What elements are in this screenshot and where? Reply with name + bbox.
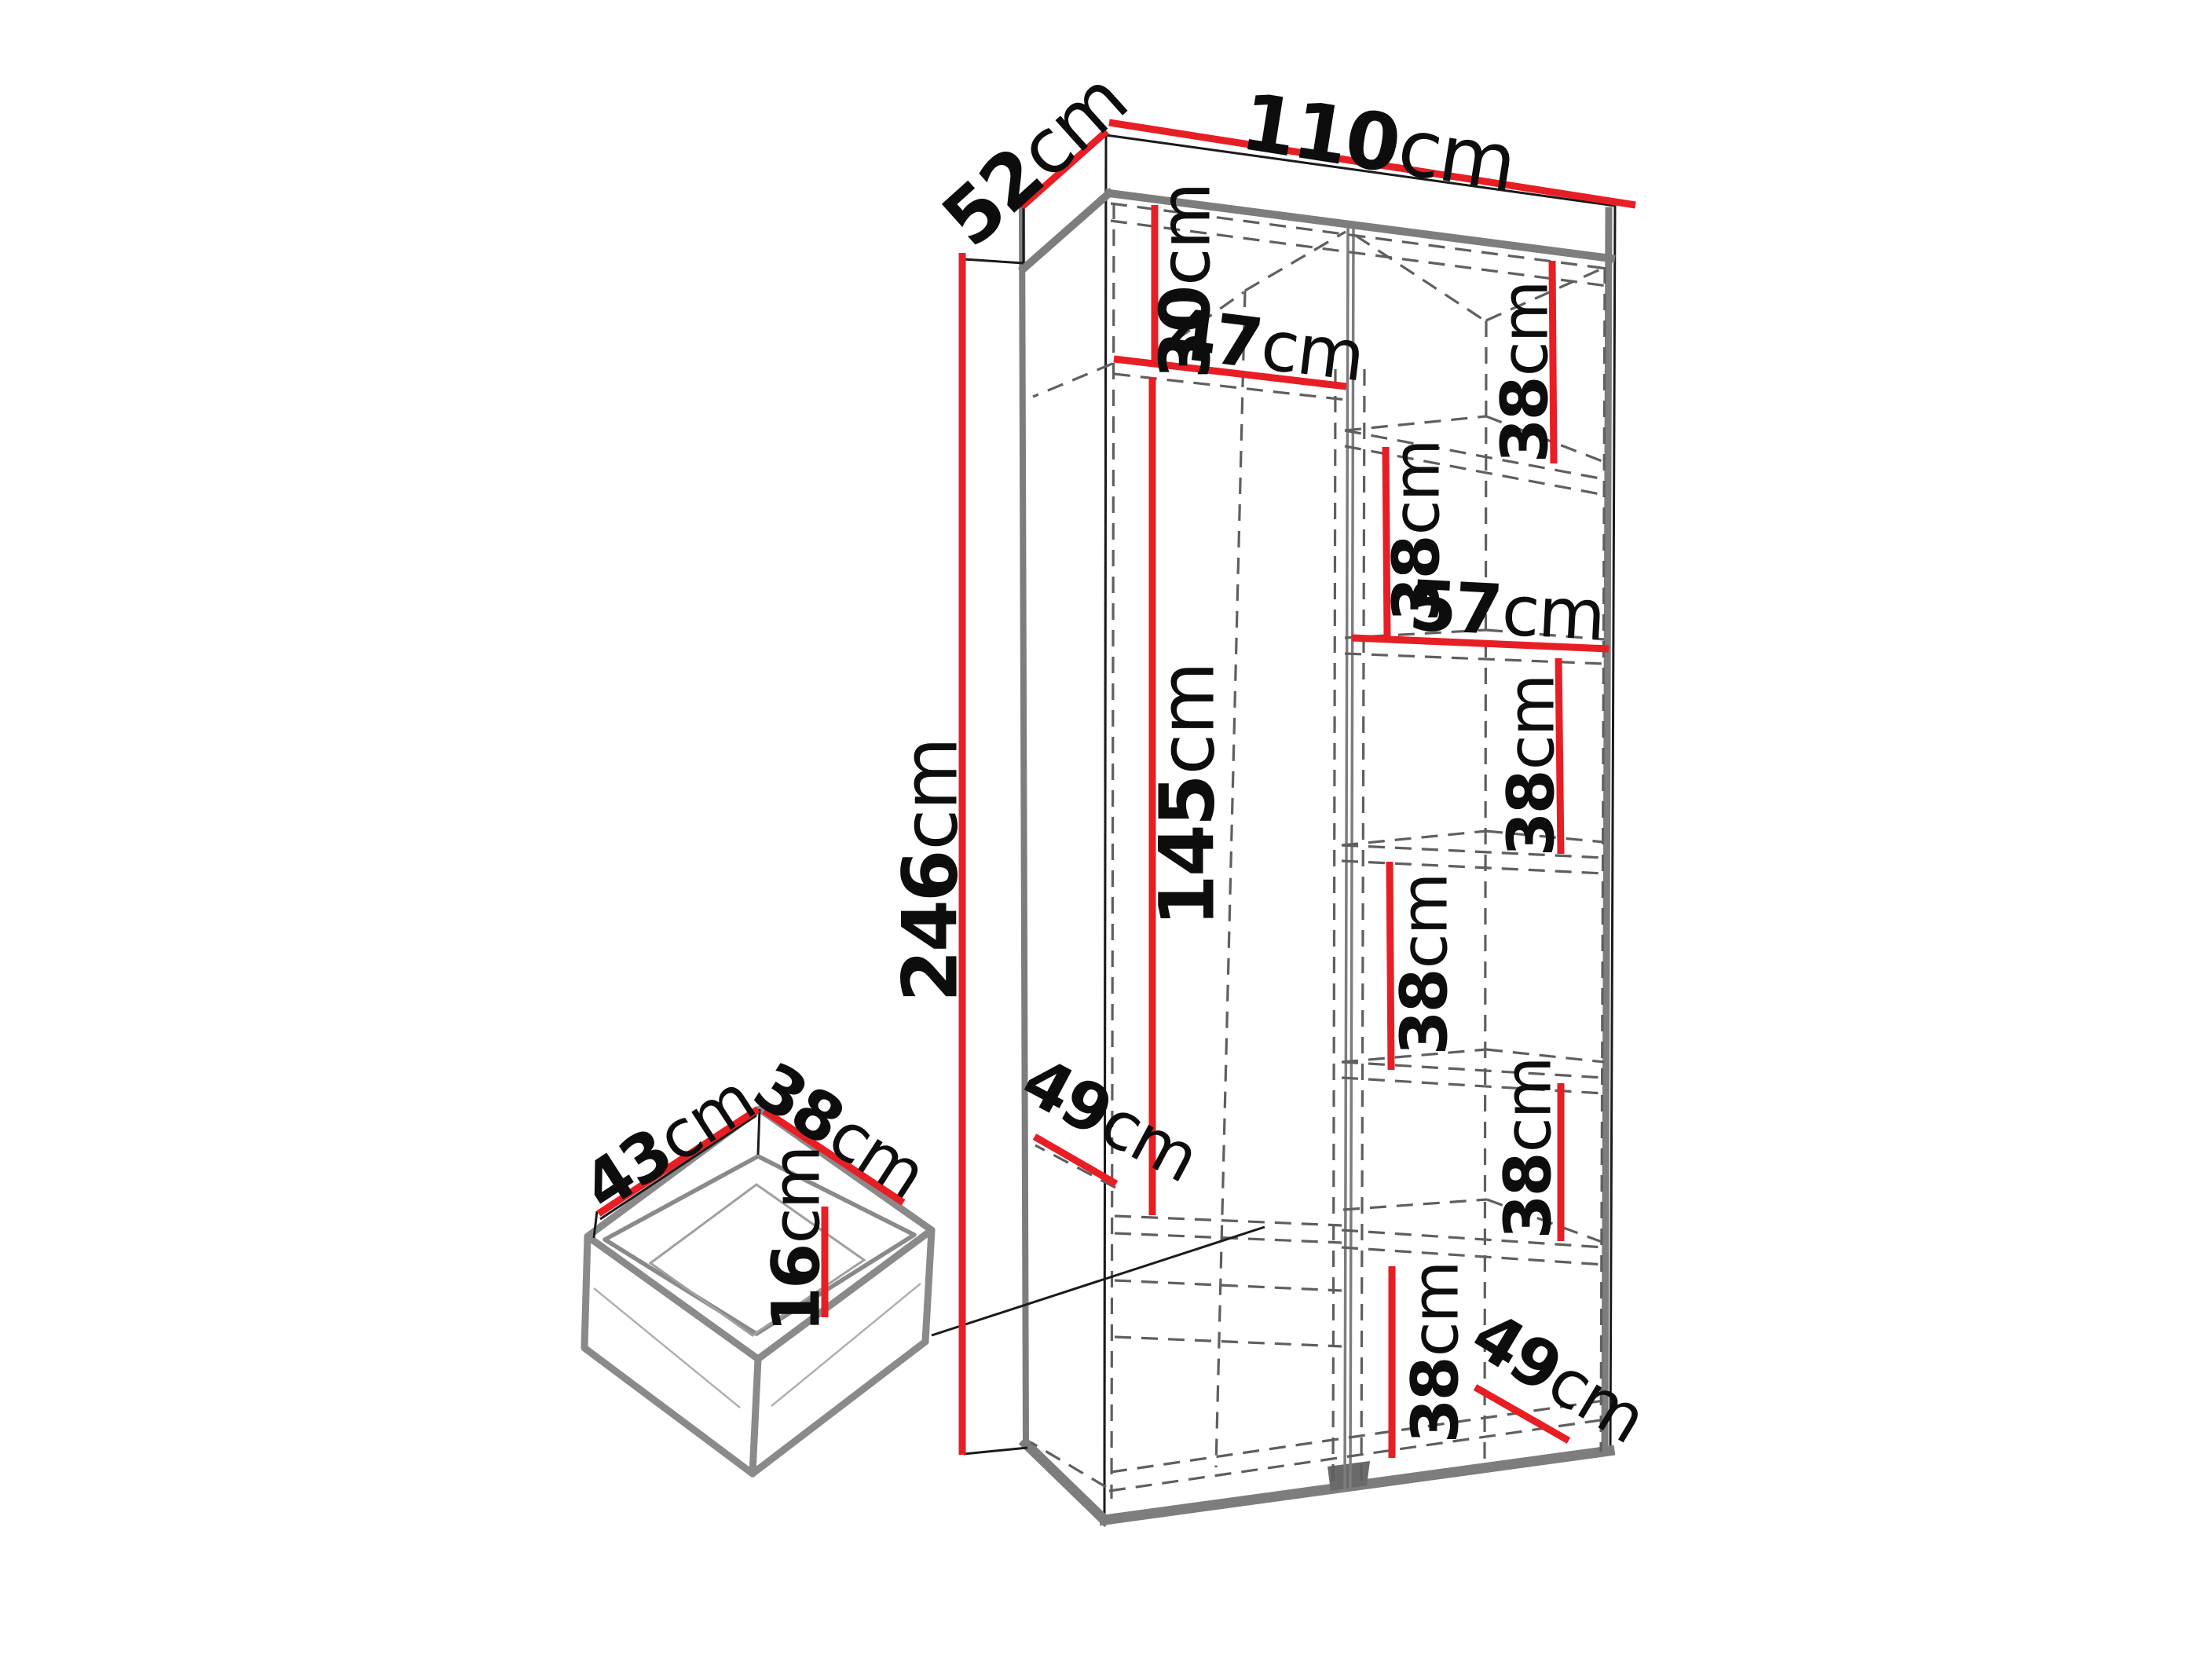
- witness-line: [964, 259, 1024, 263]
- drawer-front-corner-edge: [753, 1359, 758, 1474]
- drawer-front-rim-left: [588, 1236, 758, 1359]
- hidden-edge-line: [1485, 320, 1486, 1461]
- diagram-svg: 52cm 110cm 246cm 30cm 47cm 145cm 57cm 38…: [0, 0, 2212, 1659]
- label-drawer-43: 43cm: [569, 1060, 767, 1225]
- label-height-246: 246cm: [887, 738, 975, 1002]
- drawer-rail-line: [594, 1288, 740, 1408]
- wardrobe-side-panel: [1021, 135, 1106, 1522]
- label-gap-38-b: 38cm: [1380, 440, 1455, 621]
- diagram-page: 52cm 110cm 246cm 30cm 47cm 145cm 57cm 38…: [0, 0, 2212, 1659]
- label-gap-38-e: 38cm: [1492, 1057, 1566, 1239]
- back-left-edge: [1022, 211, 1026, 1444]
- label-gap-38-c: 38cm: [1495, 675, 1569, 856]
- label-gap-38-f: 38cm: [1399, 1262, 1474, 1443]
- witness-line: [964, 1448, 1027, 1454]
- label-drawer-16: 16cm: [757, 1147, 834, 1333]
- right-edge: [1605, 211, 1609, 1449]
- label-gap-38-a: 38cm: [1489, 281, 1563, 463]
- label-hanging-145: 145cm: [1144, 663, 1232, 927]
- label-gap-38-d: 38cm: [1388, 873, 1463, 1055]
